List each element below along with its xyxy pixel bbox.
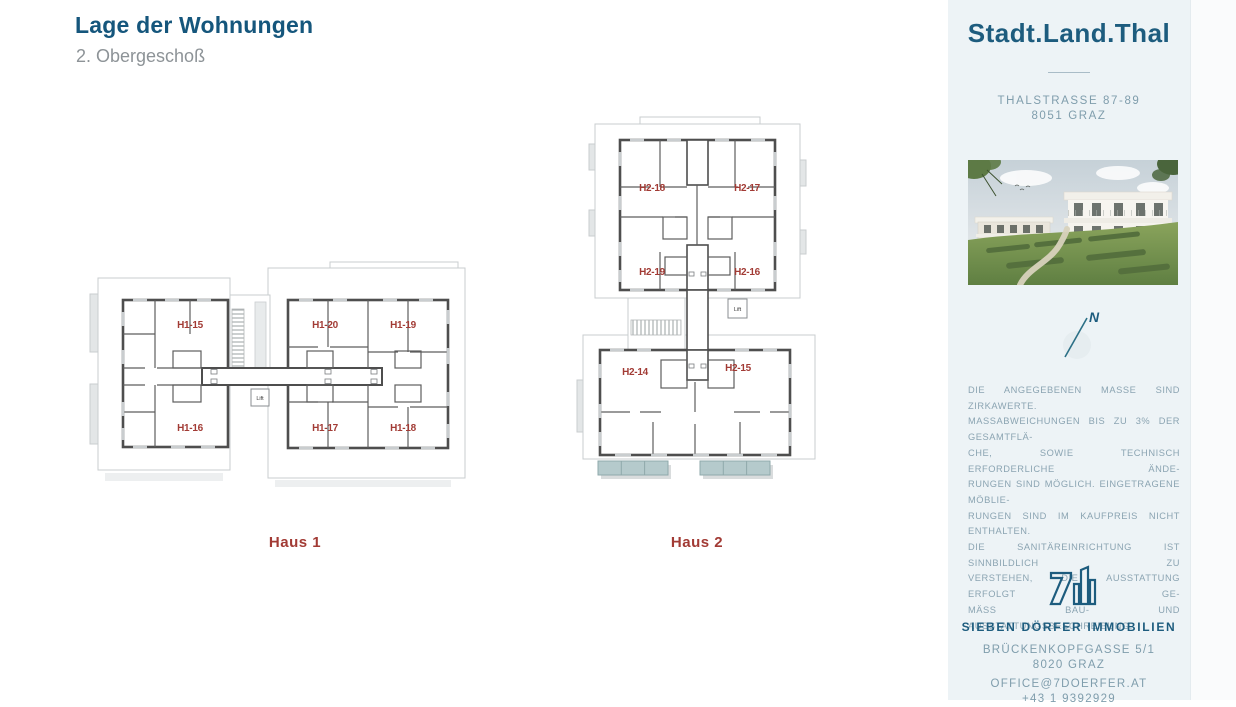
haus2-floorplan: Lift H2-18 H2-17 H2-19 H2-16 H2-14 H2-15 — [575, 112, 825, 497]
page-title: Lage der Wohnungen — [75, 12, 313, 39]
unit-label: H1-16 — [177, 423, 203, 434]
project-address-line1: THALSTRASSE 87-89 — [948, 94, 1190, 109]
disclaimer-line: RUNGEN SIND MÖGLICH. EINGETRAGENE MÖBLIE… — [968, 477, 1180, 508]
haus2-stair-shafts — [687, 140, 708, 380]
unit-label: H2-18 — [639, 183, 665, 194]
haus1-corridor — [202, 368, 382, 385]
haus2-staircase — [631, 320, 681, 335]
lift-label: Lift — [256, 396, 264, 402]
brand-title: Stadt.Land.Thal — [948, 18, 1190, 49]
haus2-lift: Lift — [728, 299, 747, 318]
unit-label: H1-15 — [177, 320, 203, 331]
haus1-lift: Lift — [251, 389, 269, 406]
company-address-line1: BRÜCKENKOPFGASSE 5/1 — [948, 643, 1190, 658]
unit-label: H1-18 — [390, 423, 416, 434]
page-margin-strip — [1190, 0, 1236, 700]
haus2-label: Haus 2 — [647, 534, 747, 551]
company-name: SIEBEN DÖRFER IMMOBILIEN — [948, 620, 1190, 634]
disclaimer-line: MASSABWEICHUNGEN BIS ZU 3% DER GESAMTFLÄ… — [968, 414, 1180, 445]
page-subtitle: 2. Obergeschoß — [76, 46, 205, 67]
company-logo-icon — [1044, 562, 1100, 612]
company-address-line2: 8020 GRAZ — [948, 658, 1190, 673]
project-photo — [968, 160, 1178, 285]
unit-label: H2-17 — [734, 183, 760, 194]
compass-icon: N — [1055, 305, 1125, 375]
unit-label: H1-19 — [390, 320, 416, 331]
document-page: Lage der Wohnungen 2. Obergeschoß — [0, 0, 948, 700]
unit-label: H1-20 — [312, 320, 338, 331]
haus1-label: Haus 1 — [245, 534, 345, 551]
haus1-floorplan: Lift H1-15 H1-20 H1-19 H1-16 H1-17 H1-18 — [85, 252, 480, 502]
haus2-balconies — [598, 461, 773, 479]
disclaimer-line: CHE, SOWIE TECHNISCH ERFORDERLICHE ÄNDE- — [968, 446, 1180, 477]
company-email: OFFICE@7DOERFER.AT — [948, 677, 1190, 692]
unit-label: H2-16 — [734, 267, 760, 278]
brand-divider — [1048, 72, 1090, 73]
company-contact: OFFICE@7DOERFER.AT +43 1 9392929 — [948, 677, 1190, 707]
disclaimer-line: DIE ANGEGEBENEN MASSE SIND ZIRKAWERTE. — [968, 383, 1180, 414]
lift-label: Lift — [734, 307, 742, 313]
project-address-line2: 8051 GRAZ — [948, 109, 1190, 124]
unit-label: H2-19 — [639, 267, 665, 278]
project-address: THALSTRASSE 87-89 8051 GRAZ — [948, 94, 1190, 123]
north-label: N — [1089, 309, 1100, 325]
disclaimer-line: RUNGEN SIND IM KAUFPREIS NICHT ENTHALTEN… — [968, 509, 1180, 540]
company-address: BRÜCKENKOPFGASSE 5/1 8020 GRAZ — [948, 643, 1190, 673]
unit-label: H1-17 — [312, 423, 338, 434]
unit-label: H2-14 — [622, 367, 648, 378]
sidebar: Stadt.Land.Thal THALSTRASSE 87-89 8051 G… — [948, 0, 1190, 700]
unit-label: H2-15 — [725, 363, 751, 374]
